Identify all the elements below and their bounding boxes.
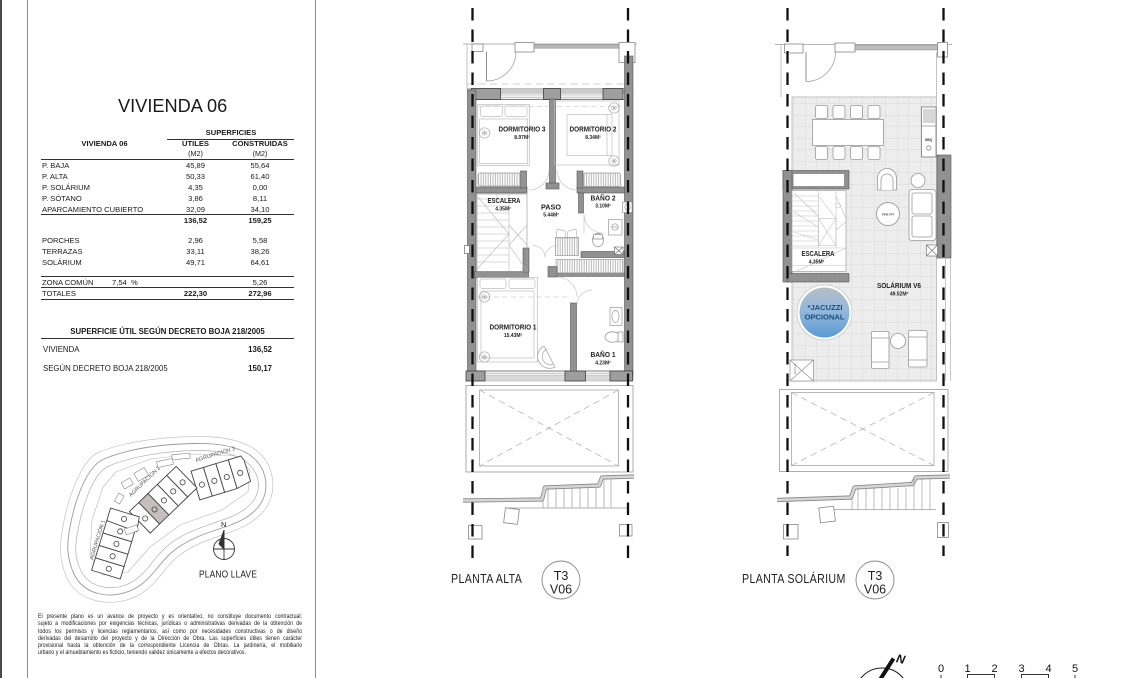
svg-text:49.52M²: 49.52M²: [890, 292, 909, 298]
svg-text:N: N: [895, 651, 907, 667]
svg-text:5.44M²: 5.44M²: [543, 213, 559, 219]
svg-text:BAÑO 2: BAÑO 2: [591, 194, 616, 203]
svg-text:*JACUZZI: *JACUZZI: [807, 303, 842, 312]
svg-text:V06: V06: [549, 582, 571, 596]
svg-text:1: 1: [964, 663, 970, 675]
svg-text:0: 0: [938, 663, 944, 675]
svg-text:5: 5: [1072, 663, 1078, 675]
svg-text:BAÑO 1: BAÑO 1: [591, 350, 616, 359]
svg-text:OPCIONAL: OPCIONAL: [804, 313, 844, 322]
svg-text:2: 2: [991, 663, 997, 675]
svg-text:8.97M²: 8.97M²: [514, 135, 530, 141]
svg-text:SOLÁRIUM V6: SOLÁRIUM V6: [877, 281, 921, 290]
svg-text:V06: V06: [863, 582, 885, 596]
svg-text:DUCHA: DUCHA: [793, 363, 797, 374]
svg-text:T3: T3: [867, 569, 882, 583]
svg-text:DORMITORIO 3: DORMITORIO 3: [499, 127, 546, 134]
svg-text:T3: T3: [553, 569, 568, 583]
svg-text:FIRE PIT: FIRE PIT: [882, 213, 895, 217]
svg-text:DORMITORIO 1: DORMITORIO 1: [490, 325, 537, 332]
svg-text:BBQ: BBQ: [925, 138, 933, 142]
svg-text:4.23M²: 4.23M²: [595, 361, 611, 367]
svg-text:4.35M²: 4.35M²: [809, 260, 825, 266]
svg-text:ESCALERA: ESCALERA: [488, 198, 521, 205]
svg-text:ESCALERA: ESCALERA: [802, 251, 835, 258]
svg-text:DORMITORIO 2: DORMITORIO 2: [570, 127, 617, 134]
svg-text:4.35M²: 4.35M²: [495, 207, 511, 213]
svg-text:N: N: [221, 520, 226, 529]
svg-text:8.34M²: 8.34M²: [585, 135, 601, 141]
svg-text:4: 4: [1045, 663, 1051, 675]
svg-text:PASO: PASO: [541, 205, 562, 212]
svg-text:3.10M²: 3.10M²: [595, 204, 611, 210]
svg-text:3: 3: [1018, 663, 1024, 675]
svg-text:15.43M²: 15.43M²: [504, 333, 523, 339]
svg-text:PLANO LLAVE: PLANO LLAVE: [199, 569, 257, 581]
